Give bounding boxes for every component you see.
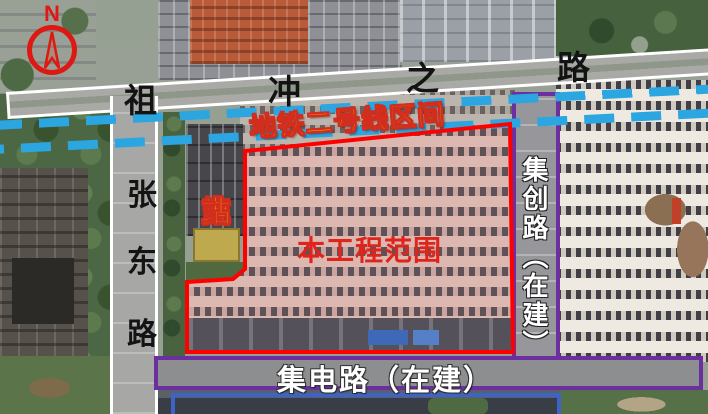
road-label-zu: 祖 (124, 86, 157, 119)
substation-yellow-roof (193, 228, 240, 262)
north-arrow-icon (32, 30, 72, 70)
terrain-bottom-left-green (0, 356, 110, 414)
construction-site-orange-building (190, 0, 308, 64)
road-label-lu: 路 (557, 53, 590, 86)
road-jidian-label: 集电路（在建） (277, 357, 494, 399)
zhangdong-char-2: 东 (127, 248, 157, 278)
zhangdong-char-1: 张 (127, 181, 157, 211)
terrain-bottom-right-green (560, 390, 708, 414)
blue-truck (413, 330, 439, 345)
road-jichuang-label: 集创路（在建） (515, 156, 552, 359)
project-area-label: 本工程范围 (297, 229, 442, 269)
compass-icon (27, 25, 77, 75)
substation-char-3: 站 (201, 197, 231, 229)
zhangdong-char-3: 路 (127, 320, 157, 350)
red-truck (672, 198, 681, 224)
project-area-shed (189, 318, 511, 350)
terrain-mid-trees (163, 112, 185, 360)
compass-north-label: N (44, 1, 60, 27)
terrain-left-building-courtyard (12, 258, 74, 324)
terrain-top-right-trees (556, 0, 708, 56)
terrain-top-buildings (400, 0, 568, 62)
satellite-map: N 祖 冲 之 路 张 东 路 地铁二号线区间 变 电 站 本工程范围 集创路（… (0, 0, 708, 414)
blue-truck (368, 330, 408, 345)
